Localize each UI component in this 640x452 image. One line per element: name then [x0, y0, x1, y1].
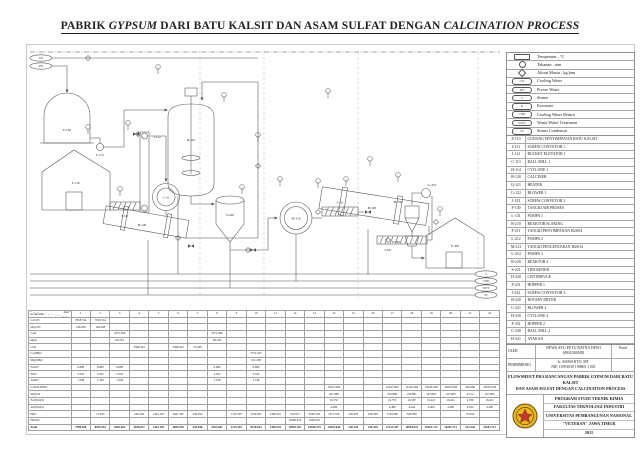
equipment-row: M-213TANGKI PENGENCERAN H2SO4: [507, 244, 634, 252]
component-name-cell: Mg(OH)2: [29, 357, 72, 364]
balance-value-cell: 2534.697: [246, 411, 265, 418]
equipment-name: ROTARY DRYER: [526, 297, 634, 304]
equipment-row: H-114CYCLONE 1: [507, 167, 634, 175]
balance-value-cell: 4.489: [324, 404, 343, 411]
institution-line-1: PROGRAM STUDI TEKNIK KIMIA: [544, 395, 634, 404]
pump-symbol: L-131: [90, 109, 168, 157]
bucket-elevator-label: J-112: [153, 135, 161, 139]
balance-value-cell: [305, 391, 324, 398]
balance-value-cell: [266, 351, 285, 358]
equipment-name: BUCKET ELEVATOR 1: [526, 151, 634, 158]
balance-value-cell: [421, 377, 440, 384]
balance-value-cell: [383, 364, 402, 371]
balance-value-cell: [149, 317, 168, 324]
thickener-label: S-220: [226, 213, 234, 217]
balance-value-cell: 240.294: [129, 411, 148, 418]
balance-value-cell: [207, 351, 226, 358]
equipment-code: F-231: [507, 282, 526, 289]
equipment-name: CYCLONE 2: [526, 313, 634, 320]
institution-line-2: FAKULTAS TEKNOLOGI INDUSTRI: [544, 404, 634, 413]
balance-value-cell: [383, 377, 402, 384]
author-row: OLEH DEWA AYU PUTU RATNA DEWI (083101004…: [507, 345, 634, 359]
component-name-cell: Ca(OH)2: [29, 351, 72, 358]
utility-return-lines: S CWR WWT SC: [30, 196, 497, 298]
balance-value-cell: [480, 337, 500, 344]
balance-value-cell: [421, 418, 440, 425]
balance-value-cell: [285, 384, 304, 391]
flowsheet-caption-line1: FLOWSHEET PRA RANCANGAN PABRIK GYPSUM DA…: [508, 374, 633, 385]
balance-value-cell: [324, 324, 343, 331]
balance-value-cell: [344, 331, 363, 338]
equipment-code: L-212: [507, 236, 526, 243]
balance-value-cell: [460, 351, 479, 358]
balance-value-cell: [402, 351, 421, 358]
balance-value-cell: 101.238: [246, 357, 265, 364]
balance-value-cell: 9.152: [460, 391, 479, 398]
legend-row: SSteam: [507, 94, 634, 102]
title-part-1: PABRIK: [61, 20, 109, 32]
balance-value-cell: [266, 384, 285, 391]
equipment-name: SCREW CONVEYOR 1: [526, 144, 634, 151]
title-block: OLEH DEWA AYU PUTU RATNA DEWI (083101004…: [506, 344, 635, 438]
balance-value-cell: [344, 357, 363, 364]
balance-value-cell: [110, 418, 129, 425]
balance-value-cell: [149, 324, 168, 331]
balance-value-cell: [188, 324, 207, 331]
balance-value-cell: [149, 337, 168, 344]
equipment-code: F-331: [507, 321, 526, 328]
balance-value-cell: [460, 331, 479, 338]
equipment-list: F-110GUDANG PENYIMPANAN BATU KALSITJ-111…: [506, 135, 635, 373]
balance-row: MgCO3146.208146.208: [29, 324, 500, 331]
balance-value-cell: 230.430: [363, 411, 382, 418]
stream-header-cell: 13: [305, 311, 324, 318]
equipment-row: L-214POMPA 3: [507, 251, 634, 259]
balance-value-cell: [266, 364, 285, 371]
stream-header-cell: 4: [129, 311, 148, 318]
balance-value-cell: [363, 337, 382, 344]
balance-value-cell: [383, 371, 402, 378]
raw-warehouse-label: F-110: [72, 181, 80, 185]
balance-value-cell: 1046.025: [305, 418, 324, 425]
balance-value-cell: [168, 324, 187, 331]
balance-value-cell: [441, 344, 460, 351]
equipment-name: BALL MILL 2: [526, 328, 634, 335]
equipment-row: F-331HOPPER 2: [507, 321, 634, 329]
legend-row: PWProses Water: [507, 86, 634, 94]
equipment-row: J-112BUCKET ELEVATOR 1: [507, 151, 634, 159]
balance-value-cell: [460, 418, 479, 425]
balance-value-cell: [110, 344, 129, 351]
balance-value-cell: [266, 337, 285, 344]
institution-line-4: "VETERAN" JAWA TIMUR: [544, 421, 634, 430]
balance-value-cell: [149, 357, 168, 364]
temperature-symbol: [514, 54, 530, 60]
balance-value-cell: 1461.187: [149, 424, 168, 431]
hopper-label: F-340: [392, 240, 400, 244]
balance-value-cell: [285, 317, 304, 324]
balance-value-cell: [227, 337, 246, 344]
balance-value-cell: 12213.347: [383, 424, 402, 431]
balance-value-cell: [168, 364, 187, 371]
balance-value-cell: 1461.187: [168, 411, 187, 418]
balance-value-cell: [168, 384, 187, 391]
stream-header-cell: 20: [441, 311, 460, 318]
stream-header-cell: 7: [188, 311, 207, 318]
legend-row: Aliran Massa , kg/jam: [507, 70, 634, 78]
balance-value-cell: [363, 324, 382, 331]
centrifuge-symbol: M-310: [280, 202, 322, 234]
balance-value-cell: [266, 377, 285, 384]
balance-value-cell: [90, 357, 109, 364]
balance-value-cell: 10994.673: [402, 424, 421, 431]
legend-symbol-cell: CW: [507, 78, 537, 85]
equipment-code: J-232: [507, 290, 526, 297]
balance-value-cell: [460, 337, 479, 344]
equipment-code: B-120: [507, 174, 526, 181]
balance-value-cell: [246, 317, 265, 324]
balance-value-cell: [266, 371, 285, 378]
balance-value-cell: [246, 324, 265, 331]
balance-value-cell: 12842.646: [324, 424, 343, 431]
balance-value-cell: [207, 411, 226, 418]
component-name-cell: CaSO4.2H2O: [29, 384, 72, 391]
equipment-name: HOPPER 1: [526, 282, 634, 289]
legend-symbol-cell: SC: [507, 128, 537, 135]
balance-value-cell: 16.755: [324, 397, 343, 404]
balance-value-cell: [305, 384, 324, 391]
bucket-elevator-symbol: J-112: [140, 132, 167, 212]
balance-value-cell: 0.204: [460, 404, 479, 411]
balance-value-cell: [460, 357, 479, 364]
legend-symbol-cell: [507, 70, 537, 76]
corner-top-label: Alur: [64, 311, 70, 314]
balance-value-cell: [149, 344, 168, 351]
balance-value-cell: [363, 391, 382, 398]
balance-value-cell: [402, 418, 421, 425]
balance-value-cell: 201.880: [383, 391, 402, 398]
centrifuge-label: M-310: [291, 217, 301, 221]
equipment-code: F-110: [507, 136, 526, 143]
balance-value-cell: [305, 317, 324, 324]
equipment-row: Q-121HEATER: [507, 182, 634, 190]
equipment-name: GUDANG PENYIMPANAN BATU KALSIT: [526, 136, 634, 143]
balance-value-cell: [168, 331, 187, 338]
balance-row: Mg(OH)2101.238: [29, 357, 500, 364]
product-warehouse-label: F-350: [451, 244, 459, 248]
balance-value-cell: 1369.525: [266, 424, 285, 431]
balance-value-cell: 69.794: [110, 337, 129, 344]
balance-row: CO23398.3433398.34325.346: [29, 344, 500, 351]
balance-value-cell: [266, 404, 285, 411]
equipment-row: J-111SCREW CONVEYOR 1: [507, 144, 634, 152]
balance-value-cell: [90, 418, 109, 425]
balance-value-cell: 16.421: [480, 397, 500, 404]
balance-value-cell: [324, 377, 343, 384]
balance-value-cell: 7998.408: [71, 424, 90, 431]
balance-value-cell: 10983.167: [285, 424, 304, 431]
balance-value-cell: [383, 357, 402, 364]
balance-value-cell: [149, 404, 168, 411]
balance-value-cell: 9500.250: [305, 411, 324, 418]
paraf-label: Paraf: [611, 345, 634, 358]
balance-value-cell: [129, 371, 148, 378]
balance-value-cell: [71, 411, 90, 418]
equipment-name: TANGKI PENYIMPANAN H2SO4: [526, 228, 634, 235]
stream-header-cell: 8: [207, 311, 226, 318]
balance-value-cell: [421, 371, 440, 378]
balance-value-cell: [227, 331, 246, 338]
balance-value-cell: [149, 371, 168, 378]
legend-row: Temperatur , °C: [507, 53, 634, 61]
balance-value-cell: [71, 384, 90, 391]
legend-row: WWTWaste Water Treatment: [507, 119, 634, 127]
institution-line-3: UNIVERSITAS PEMBANGUNAN NASIONAL: [544, 412, 634, 421]
institution-lines: PROGRAM STUDI TEKNIK KIMIA FAKULTAS TEKN…: [544, 395, 634, 437]
institution-line-5: 2011: [544, 430, 634, 438]
equipment-name: CALCINER: [526, 174, 634, 181]
balance-value-cell: 8419.654: [246, 424, 265, 431]
balance-value-cell: [344, 404, 363, 411]
balance-value-cell: [324, 331, 343, 338]
balance-value-cell: [363, 418, 382, 425]
balance-value-cell: [149, 331, 168, 338]
balance-value-cell: 4.400: [441, 404, 460, 411]
balance-value-cell: [441, 351, 460, 358]
screw-conveyor-3-symbol: J-321: [377, 196, 432, 252]
legend-symbol-cell: PW: [507, 87, 537, 94]
balance-value-cell: [129, 418, 148, 425]
screw-conveyor-3-label: J-321: [384, 248, 392, 252]
balance-value-cell: 16.421: [421, 397, 440, 404]
balance-value-cell: [441, 411, 460, 418]
balance-value-cell: [227, 384, 246, 391]
pressure-symbol: [519, 61, 526, 68]
balance-value-cell: [227, 377, 246, 384]
balance-value-cell: [402, 324, 421, 331]
balance-value-cell: 3398.343: [168, 344, 187, 351]
balance-value-cell: [129, 377, 148, 384]
balance-value-cell: [110, 357, 129, 364]
equipment-name: REAKTOR SLAKING: [526, 221, 634, 228]
balance-value-cell: [363, 397, 382, 404]
component-name-cell: CaO: [29, 331, 72, 338]
stream-header-cell: 14: [324, 311, 343, 318]
balance-value-cell: [305, 351, 324, 358]
balance-row: Ca(OH)25772.347: [29, 351, 500, 358]
legend-row: Tekanan , atm: [507, 61, 634, 69]
balance-value-cell: [129, 317, 148, 324]
equipment-code: J-111: [507, 144, 526, 151]
balance-value-cell: [363, 344, 382, 351]
balance-value-cell: 69.794: [207, 337, 226, 344]
equipment-name: BLOWER 2: [526, 305, 634, 312]
balance-value-cell: [246, 397, 265, 404]
balance-row: Al2(SO4)34.4894.4894.4444.4004.4000.2044…: [29, 404, 500, 411]
balance-value-cell: 1.338: [71, 377, 90, 384]
balance-value-cell: [129, 331, 148, 338]
balance-table: AlurKomponen1234567891011121314151617181…: [28, 310, 500, 431]
balance-value-cell: [383, 351, 402, 358]
equipment-row: B-120CALCINER: [507, 174, 634, 182]
balance-value-cell: [110, 317, 129, 324]
balance-value-cell: [344, 384, 363, 391]
balance-row: Al2O31.3381.3381.3381.3381.338: [29, 377, 500, 384]
balance-value-cell: [227, 344, 246, 351]
balance-value-cell: [441, 324, 460, 331]
balance-value-cell: [421, 351, 440, 358]
component-name-cell: Al2O3: [29, 377, 72, 384]
institution-row: PROGRAM STUDI TEKNIK KIMIA FAKULTAS TEKN…: [507, 395, 634, 437]
utility-inlet-cw: CW: [30, 55, 258, 61]
author-label: OLEH: [507, 345, 536, 358]
balance-value-cell: [227, 391, 246, 398]
advisor-label: PEMBIMBING: [507, 359, 536, 372]
stream-header-cell: 18: [402, 311, 421, 318]
balance-value-cell: [441, 331, 460, 338]
balance-value-cell: [129, 391, 148, 398]
balance-value-cell: 1.338: [90, 377, 109, 384]
legend-label: Kerosene: [537, 104, 634, 108]
tank-label: F-130: [63, 128, 71, 132]
balance-value-cell: 16.421: [441, 397, 460, 404]
balance-value-cell: [363, 317, 382, 324]
balance-value-cell: [480, 351, 500, 358]
balance-value-cell: [441, 337, 460, 344]
balance-value-cell: [149, 351, 168, 358]
balance-value-cell: [266, 331, 285, 338]
balance-corner-cell: AlurKomponen: [29, 311, 72, 318]
equipment-code: B-320: [507, 297, 526, 304]
balance-value-cell: [246, 391, 265, 398]
balance-value-cell: [305, 324, 324, 331]
balance-value-cell: [285, 377, 304, 384]
legend-label: Tekanan , atm: [537, 63, 634, 67]
balance-value-cell: 10460.250: [285, 418, 304, 425]
equipment-row: H-341AYAKAN: [507, 336, 634, 344]
balance-value-cell: [90, 351, 109, 358]
balance-value-cell: [383, 337, 402, 344]
balance-value-cell: [246, 384, 265, 391]
equipment-row: C-340BALL MILL 2: [507, 328, 634, 336]
balance-row: MgO69.79469.794: [29, 337, 500, 344]
balance-value-cell: [149, 364, 168, 371]
balance-value-cell: 265.640: [188, 424, 207, 431]
balance-value-cell: [246, 337, 265, 344]
balance-value-cell: 10043.028: [480, 384, 500, 391]
equipment-row: R-220REAKTOR 2: [507, 259, 634, 267]
balance-value-cell: 3.345: [110, 371, 129, 378]
balance-value-cell: 16.587: [402, 397, 421, 404]
balance-value-cell: [110, 384, 129, 391]
material-balance: AlurKomponen1234567891011121314151617181…: [28, 310, 500, 431]
equipment-code: M-213: [507, 244, 526, 251]
equipment-name: HOPPER 2: [526, 321, 634, 328]
process-flow-diagram: CW PW F-130 L-131 R-210 F-110: [28, 46, 502, 308]
balance-value-cell: 6.689: [207, 364, 226, 371]
balance-value-cell: [480, 331, 500, 338]
balance-value-cell: [421, 357, 440, 364]
stream-header-cell: 10: [246, 311, 265, 318]
balance-value-cell: [110, 411, 129, 418]
thickener-symbol: S-220: [216, 196, 278, 250]
balance-value-cell: [285, 357, 304, 364]
equipment-name: REAKTOR 2: [526, 259, 634, 266]
balance-row: CaCO37818.7447818.744: [29, 317, 500, 324]
balance-value-cell: 10247.963: [324, 384, 343, 391]
balance-value-cell: [402, 331, 421, 338]
balance-value-cell: [402, 364, 421, 371]
balance-value-cell: [480, 344, 500, 351]
balance-value-cell: [285, 371, 304, 378]
balance-value-cell: [227, 351, 246, 358]
balance-value-cell: 4453.662: [207, 424, 226, 431]
balance-value-cell: 7818.744: [90, 317, 109, 324]
balance-row: Fe2O36.6896.6896.6896.6896.689: [29, 364, 500, 371]
balance-value-cell: [149, 391, 168, 398]
balance-value-cell: [110, 324, 129, 331]
equipment-code: C-340: [507, 328, 526, 335]
balance-value-cell: 5772.347: [246, 351, 265, 358]
balance-row: Total7998.4088020.3534453.6623638.637146…: [29, 424, 500, 431]
balance-value-cell: [344, 364, 363, 371]
component-name-cell: SiO2: [29, 371, 72, 378]
balance-value-cell: [266, 391, 285, 398]
balance-value-cell: [207, 384, 226, 391]
equipment-code: F-211: [507, 228, 526, 235]
component-name-cell: Al2(SO4)3: [29, 404, 72, 411]
balance-value-cell: 6.689: [90, 364, 109, 371]
balance-value-cell: [460, 344, 479, 351]
balance-value-cell: [421, 411, 440, 418]
balance-value-cell: [421, 364, 440, 371]
balance-value-cell: [460, 364, 479, 371]
equipment-row: L-212POMPA 2: [507, 236, 634, 244]
balance-value-cell: [480, 377, 500, 384]
legend-label: Temperatur , °C: [537, 55, 634, 59]
balance-value-cell: [227, 397, 246, 404]
balance-value-cell: [285, 397, 304, 404]
balance-value-cell: [305, 371, 324, 378]
equipment-row: H-330CYCLONE 2: [507, 313, 634, 321]
equipment-table: F-110GUDANG PENYIMPANAN BATU KALSITJ-111…: [507, 136, 634, 366]
legend-label: Steam: [537, 96, 634, 100]
balance-value-cell: [402, 344, 421, 351]
equipment-name: CENTRIFUGE: [526, 274, 634, 281]
reactor-label: R-210: [187, 138, 196, 142]
balance-value-cell: [285, 324, 304, 331]
balance-value-cell: [71, 351, 90, 358]
calciner-label: B-120: [138, 223, 147, 227]
balance-value-cell: [285, 391, 304, 398]
balance-value-cell: [90, 384, 109, 391]
balance-value-cell: 197.863: [441, 391, 460, 398]
balance-value-cell: [383, 344, 402, 351]
stream-header-cell: 22: [480, 311, 500, 318]
equipment-name: AYAKAN: [526, 336, 634, 343]
balance-value-cell: [344, 377, 363, 384]
process-water-tank-symbol: F-130: [40, 93, 94, 143]
balance-value-cell: [227, 357, 246, 364]
equipment-row: F-130TANGKI AIR PROSES: [507, 205, 634, 213]
balance-value-cell: [266, 357, 285, 364]
balance-value-cell: [344, 337, 363, 344]
equipment-row: L-131POMPA 1: [507, 213, 634, 221]
balance-value-cell: [90, 397, 109, 404]
balance-value-cell: [129, 364, 148, 371]
author-npm: (0831010048): [537, 351, 610, 356]
legend-label: Proses Water: [537, 88, 634, 92]
